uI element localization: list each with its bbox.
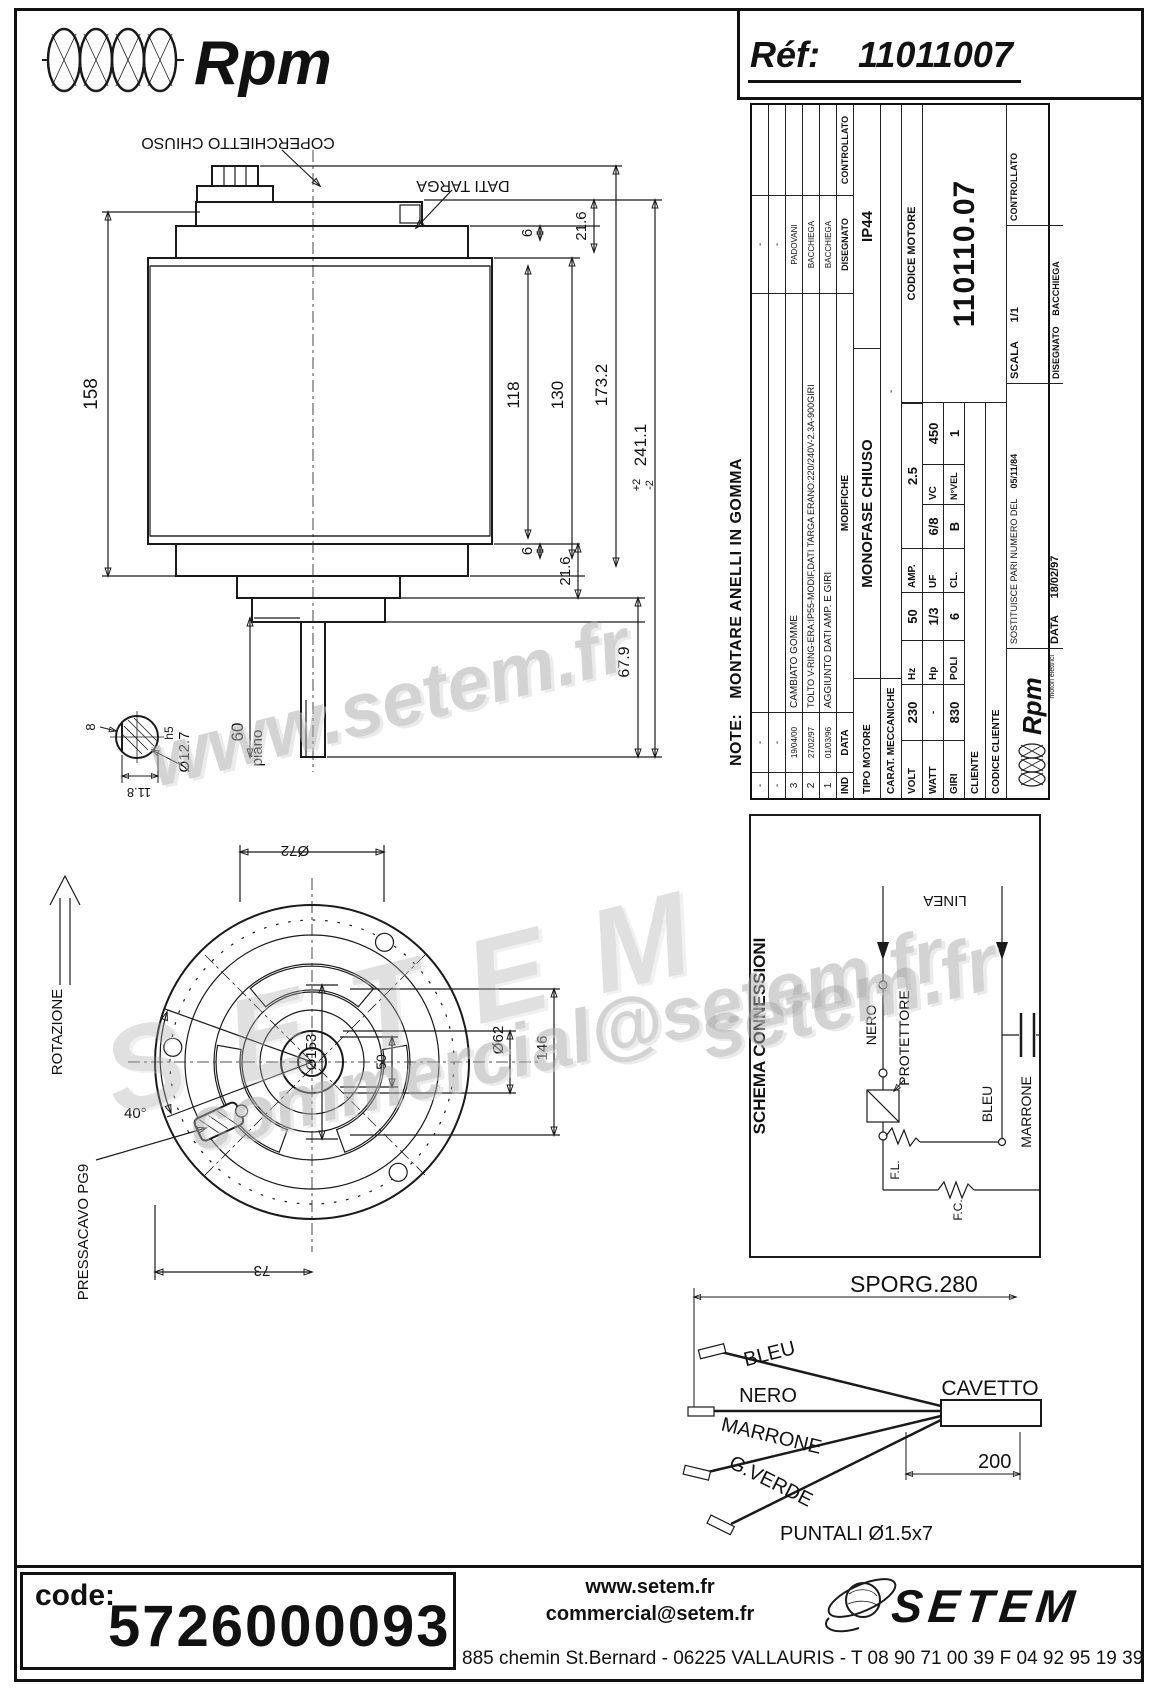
cavetto-label: CAVETTO xyxy=(941,1377,1038,1400)
code-box: code: 5726000093 xyxy=(20,1572,456,1670)
nero-wire-label: NERO xyxy=(739,1385,797,1407)
setem-globe-icon xyxy=(824,1571,900,1631)
puntali-label: PUNTALI Ø1.5x7 xyxy=(780,1523,933,1545)
gverde-wire-label: G.VERDE xyxy=(725,1452,815,1512)
footer-email: commercial@setem.fr xyxy=(520,1603,780,1626)
cable-lines xyxy=(683,1288,1041,1535)
setem-logo: SETEM xyxy=(815,1558,1145,1648)
len-200-label: 200 xyxy=(978,1451,1011,1473)
cable-drawing: SPORG.280 BLEU NERO MARRONE G.VERDE CAVE… xyxy=(0,0,1100,1560)
drawing-sheet: Rpm Réf: 11011007 xyxy=(0,0,1158,1690)
footer-address: 885 chemin St.Bernard - 06225 VALLAURIS … xyxy=(462,1648,1143,1670)
contact-block: www.setem.fr commercial@setem.fr xyxy=(520,1576,780,1626)
sporg-label: SPORG.280 xyxy=(850,1271,978,1297)
bleu-wire-label: BLEU xyxy=(742,1337,798,1371)
setem-logo-text: SETEM xyxy=(889,1580,1083,1632)
code-value: 5726000093 xyxy=(108,1593,451,1660)
code-label: code: xyxy=(35,1579,115,1613)
footer-web: www.setem.fr xyxy=(520,1576,780,1599)
